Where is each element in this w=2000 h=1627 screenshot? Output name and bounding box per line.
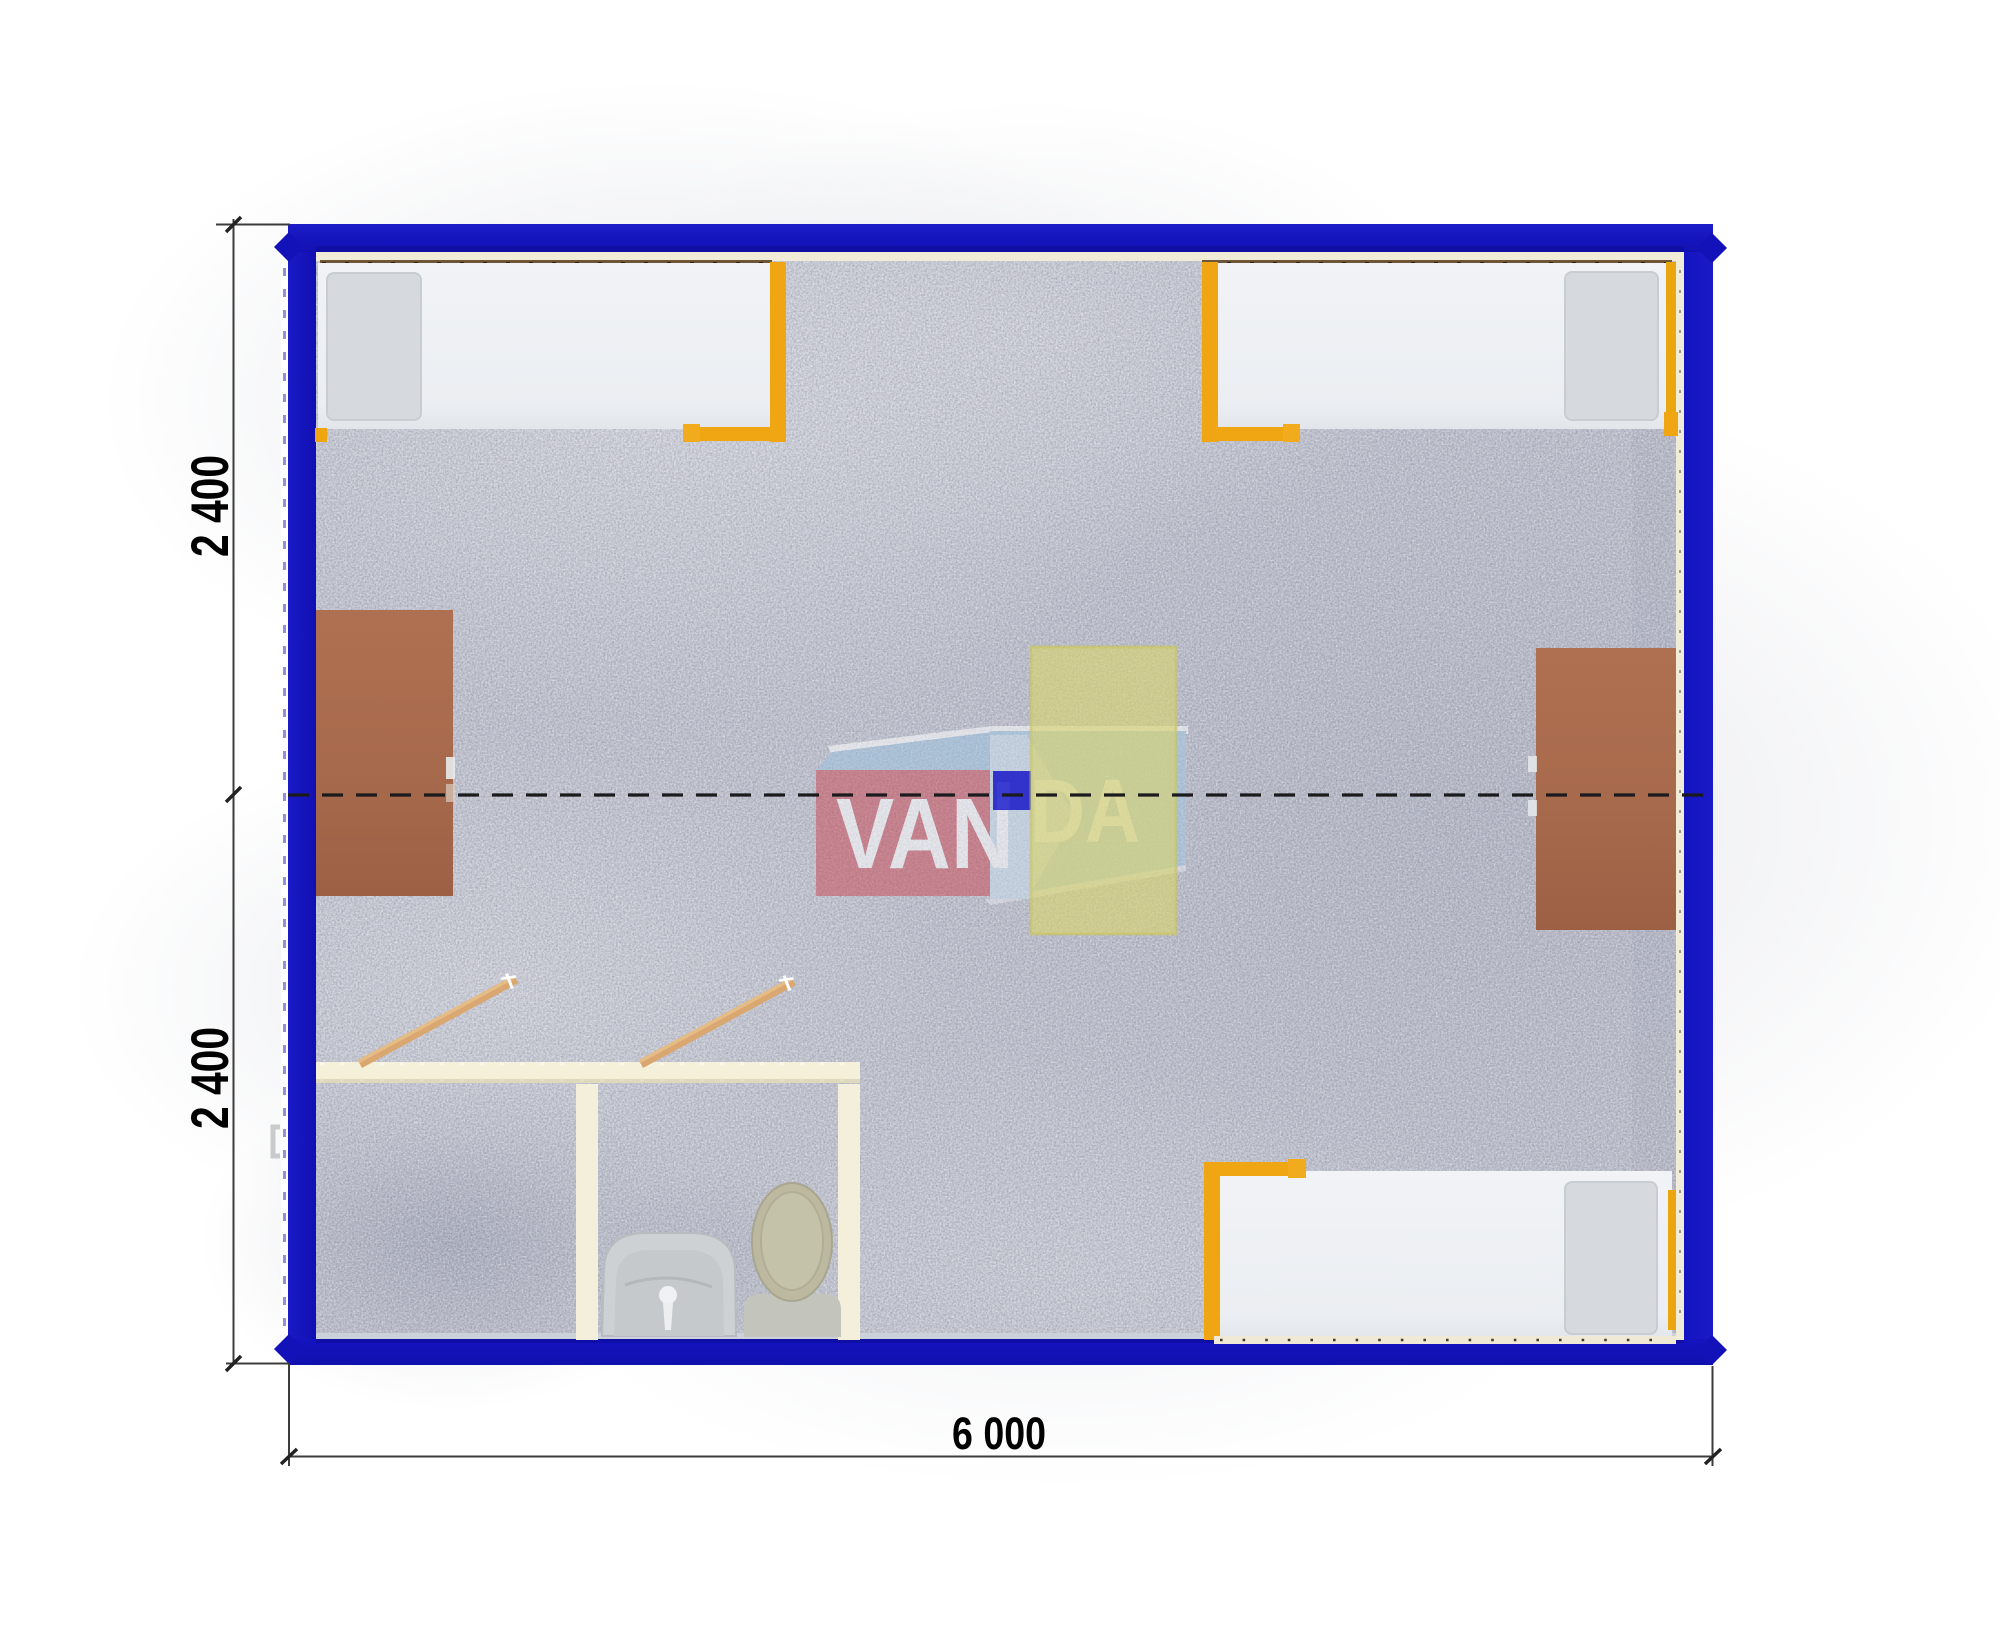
svg-text:2 400: 2 400: [181, 455, 240, 557]
svg-text:6 000: 6 000: [952, 1408, 1046, 1459]
svg-text:2 400: 2 400: [181, 1027, 240, 1129]
